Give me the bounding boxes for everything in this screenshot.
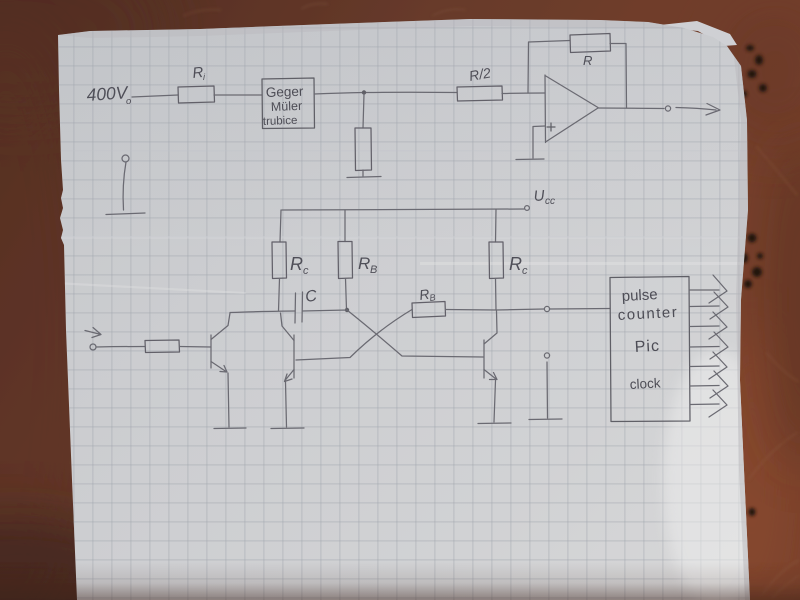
svg-text:Müler: Müler — [271, 99, 303, 114]
svg-text:B: B — [370, 264, 377, 276]
svg-text:cc: cc — [545, 196, 555, 207]
svg-text:R: R — [509, 254, 522, 274]
svg-text:c: c — [522, 265, 528, 277]
svg-text:400V: 400V — [86, 82, 130, 105]
svg-text:R: R — [358, 254, 370, 273]
svg-text:R: R — [290, 254, 303, 274]
svg-text:trubice: trubice — [263, 115, 298, 128]
svg-text:R: R — [583, 53, 592, 68]
svg-text:Pic: Pic — [634, 338, 660, 356]
svg-text:Geger: Geger — [266, 84, 305, 100]
svg-text:c: c — [303, 265, 309, 277]
svg-text:pulse: pulse — [621, 286, 658, 305]
svg-text:U: U — [533, 187, 545, 205]
svg-text:clock: clock — [629, 375, 661, 392]
svg-text:o: o — [126, 96, 131, 107]
svg-text:counter: counter — [617, 304, 678, 324]
